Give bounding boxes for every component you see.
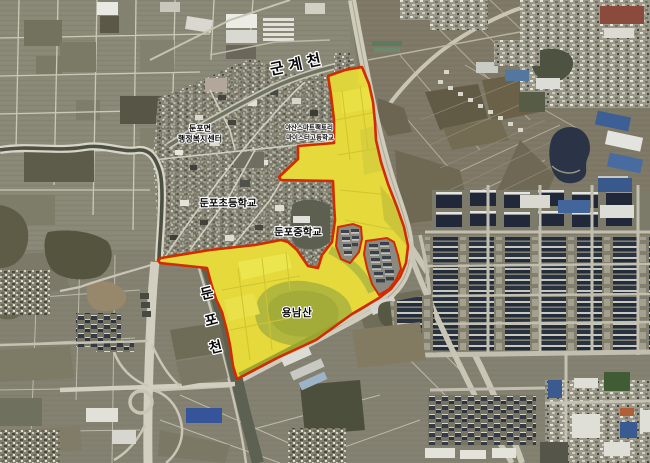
svg-text:둔포초등학교: 둔포초등학교: [199, 197, 257, 210]
svg-text:둔포중학교: 둔포중학교: [274, 226, 322, 239]
svg-text:행정복지센터: 행정복지센터: [178, 134, 222, 144]
svg-text:용남산: 용남산: [282, 306, 312, 319]
svg-text:아산스마트팩토리: 아산스마트팩토리: [285, 123, 333, 132]
svg-text:마이스터고등학교: 마이스터고등학교: [286, 133, 334, 142]
svg-text:둔포면: 둔포면: [189, 123, 211, 133]
